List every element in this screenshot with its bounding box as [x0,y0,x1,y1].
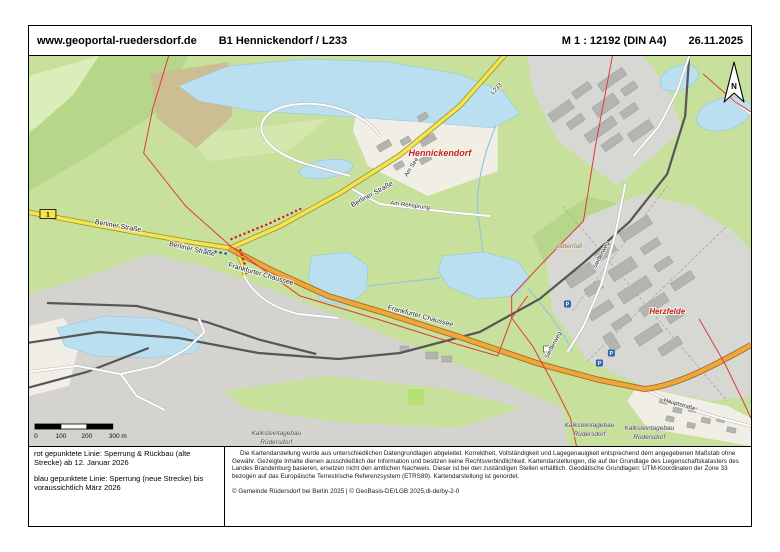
svg-text:1: 1 [46,211,50,218]
svg-text:P: P [610,351,614,357]
svg-text:P: P [598,361,602,367]
svg-text:P: P [566,302,570,308]
map-canvas: 1PPP HennickendorfHerzfeldeBerliner Stra… [29,56,751,446]
map-title: B1 Hennickendorf / L233 [219,35,347,47]
map-label: Kalksteintagebau [624,425,674,432]
map-label: Kalksteintagebau [251,430,301,437]
parking-icon: P [596,360,603,368]
footer-bar: rot gepunktete Linie: Sperrung & Rückbau… [29,446,751,526]
legend-box: rot gepunktete Linie: Sperrung & Rückbau… [29,447,225,526]
copyright-text: © Gemeinde Rüdersdorf bei Berlin 2025 | … [232,488,744,496]
legend-red-line: rot gepunktete Linie: Sperrung & Rückbau… [34,450,219,468]
scale-label-0: 0 [34,433,38,440]
map-label: Herzfelde [649,307,685,316]
geoportal-print-page: www.geoportal-ruedersdorf.de B1 Hennicke… [0,0,780,552]
scale-label-300: 300 m [109,433,127,440]
disclaimer-text: Die Kartendarstellung wurde aus untersch… [232,450,744,481]
route-badge-icon: 1 [40,210,56,219]
north-arrow-label: N [731,82,737,91]
map-date: 26.11.2025 [689,35,743,47]
legend-blue-line: blau gepunktete Linie: Sperrung (neue St… [34,475,219,493]
scale-label-100: 100 [56,433,67,440]
map-scale-text: M 1 : 12192 (DIN A4) [562,35,667,47]
map-label: Rüdersdorf [260,439,293,446]
map-label: Rüdersdorf [633,434,666,441]
map-sheet: www.geoportal-ruedersdorf.de B1 Hennicke… [28,25,752,527]
map-label: Hennickendorf [409,148,473,158]
parking-icon: P [608,350,615,358]
scale-label-200: 200 [81,433,92,440]
disclaimer-box: Die Kartendarstellung wurde aus untersch… [225,447,751,526]
map-label: Kalksteintagebau [565,422,615,429]
map-label: Rüdersdorf [573,431,606,438]
map-label: Vattenfall [555,243,582,250]
map-area: 1PPP HennickendorfHerzfeldeBerliner Stra… [29,56,751,446]
site-url: www.geoportal-ruedersdorf.de [37,35,197,47]
parking-icon: P [564,301,571,309]
header-bar: www.geoportal-ruedersdorf.de B1 Hennicke… [29,26,751,56]
